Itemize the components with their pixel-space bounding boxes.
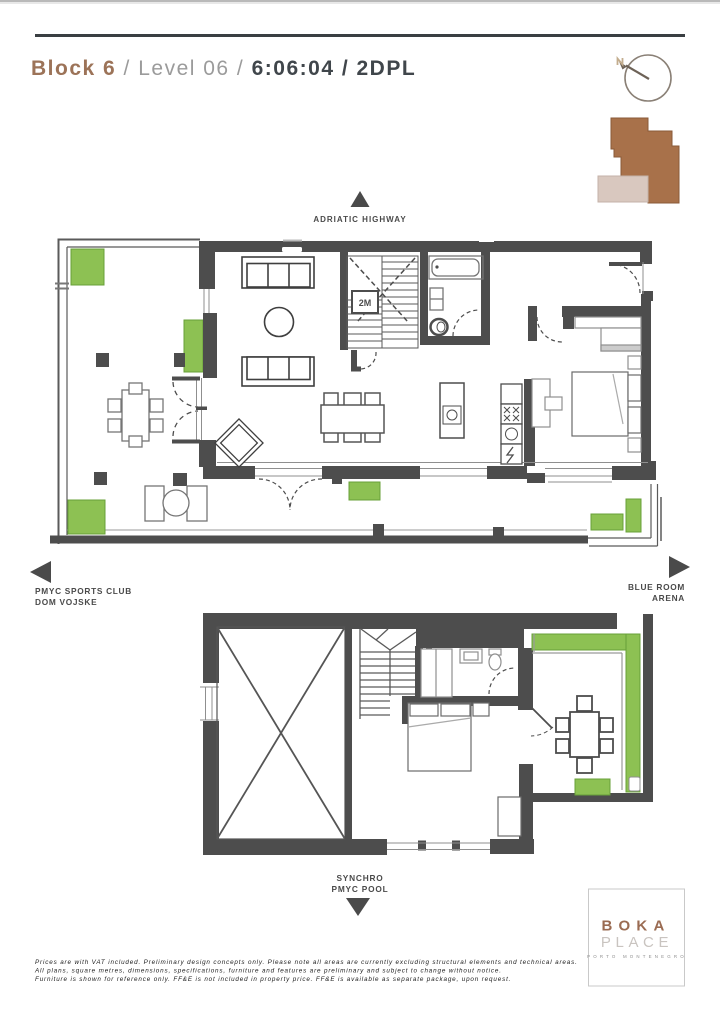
svg-text:Block 6 / Level 06 / 6:06:04 /: Block 6 / Level 06 / 6:06:04 / 2DPL xyxy=(31,57,416,80)
svg-text:All plans, square metres, dime: All plans, square metres, dimensions, sp… xyxy=(34,967,502,974)
svg-text:ADRIATIC HIGHWAY: ADRIATIC HIGHWAY xyxy=(313,215,406,224)
svg-text:Prices are with VAT included.: Prices are with VAT included. Preliminar… xyxy=(35,959,578,966)
svg-text:ARENA: ARENA xyxy=(652,593,685,603)
svg-text:PMYC SPORTS CLUB: PMYC SPORTS CLUB xyxy=(35,586,132,596)
svg-text:PMYC POOL: PMYC POOL xyxy=(332,884,389,894)
svg-text:DOM VOJSKE: DOM VOJSKE xyxy=(35,597,97,607)
svg-text:Furniture is shown for referen: Furniture is shown for reference only. F… xyxy=(35,976,511,983)
svg-text:BLUE ROOM: BLUE ROOM xyxy=(628,582,685,592)
svg-text:PORTO MONTENEGRO: PORTO MONTENEGRO xyxy=(587,954,687,959)
svg-text:PLACE: PLACE xyxy=(601,934,673,951)
svg-text:2M: 2M xyxy=(359,298,372,308)
svg-text:SYNCHRO: SYNCHRO xyxy=(336,873,383,883)
svg-text:BOKA: BOKA xyxy=(602,918,671,935)
